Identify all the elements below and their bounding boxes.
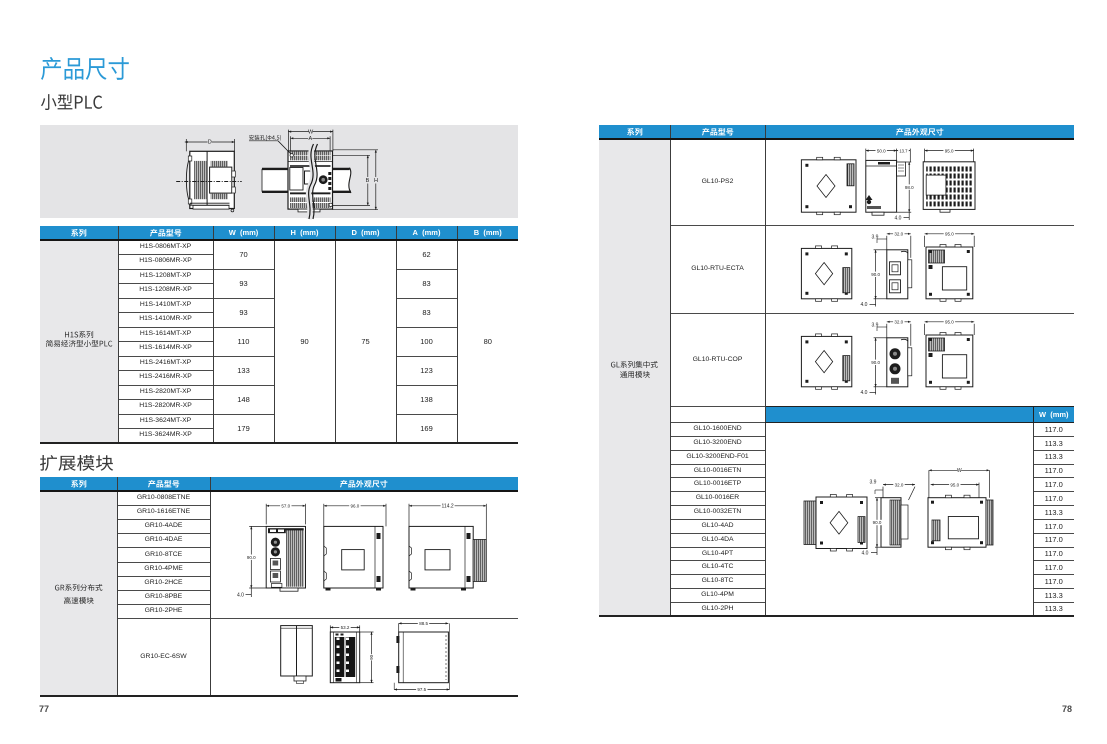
- svg-text:H: H: [374, 178, 378, 184]
- svg-text:A: A: [308, 136, 312, 142]
- svg-text:W: W: [308, 129, 314, 135]
- svg-text:B: B: [366, 178, 370, 184]
- svg-text:D: D: [208, 140, 212, 146]
